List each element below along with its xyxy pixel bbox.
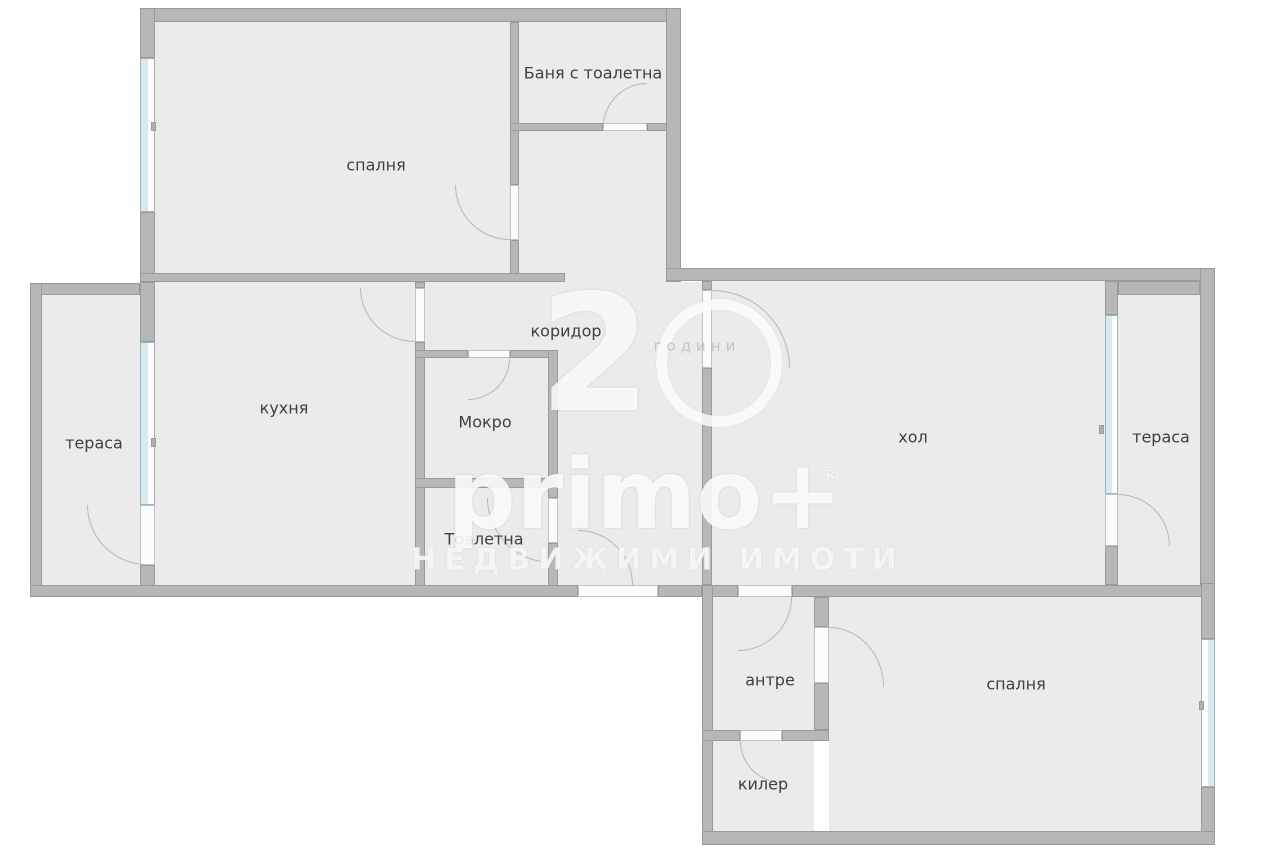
window-bedroom-bottom: [1201, 639, 1215, 787]
watermark-brand-logo: primo+: [447, 439, 842, 551]
wall: [666, 268, 1215, 281]
wall: [140, 8, 681, 22]
door-closet: [740, 730, 782, 741]
wall: [814, 683, 829, 730]
door-entrance: [578, 585, 658, 597]
room-label-terrace-right: тераса: [1132, 428, 1190, 447]
door-utility: [468, 350, 510, 358]
wall: [1105, 546, 1118, 585]
wall: [792, 585, 1215, 597]
watermark-digit: 2: [539, 261, 652, 449]
room-floor-bedroom-top: [155, 22, 510, 273]
wall: [666, 8, 681, 282]
room-label-entry-hall: антре: [745, 671, 795, 690]
room-label-closet: килер: [738, 775, 788, 794]
room-label-kitchen: кухня: [260, 399, 309, 418]
window-handle: [1099, 425, 1104, 434]
watermark-registered: ®: [819, 464, 841, 489]
room-label-utility: Мокро: [458, 413, 511, 432]
wall: [510, 22, 519, 185]
floor-plan: спалня Баня с тоалетна коридор кухня тер…: [0, 0, 1285, 854]
window-kitchen-terrace: [140, 342, 155, 505]
wall: [1201, 583, 1215, 639]
wall: [140, 273, 565, 282]
wall: [415, 350, 468, 358]
wall: [30, 585, 578, 597]
wall: [702, 585, 713, 845]
door-kitchen: [415, 288, 425, 342]
wall: [140, 212, 155, 282]
room-floor-bedroom-bottom: [829, 597, 1201, 831]
door-bedroom-bottom: [814, 627, 829, 683]
wall: [30, 283, 140, 295]
wall: [140, 282, 155, 342]
wall: [814, 597, 829, 627]
wall: [1118, 281, 1200, 295]
window-handle: [1199, 701, 1204, 710]
wall: [702, 730, 740, 741]
room-floor-corridor-upper: [519, 131, 666, 282]
door-terrace-right: [1105, 494, 1118, 546]
wall: [30, 283, 42, 597]
wall: [782, 730, 829, 741]
window-handle: [151, 122, 156, 131]
wall: [702, 281, 712, 290]
door-entry-hall: [738, 585, 792, 597]
room-label-living-room: хол: [898, 428, 927, 447]
window-handle: [151, 438, 156, 447]
wall: [702, 831, 1215, 845]
wall: [658, 585, 702, 597]
wall: [140, 8, 155, 58]
wall: [1200, 268, 1215, 597]
room-label-terrace-left: тераса: [65, 434, 123, 453]
watermark-years-word: години: [654, 337, 741, 355]
window-living-terrace: [1105, 315, 1118, 494]
room-label-bathroom: Баня с тоалетна: [524, 64, 662, 83]
room-floor-kitchen: [155, 282, 415, 585]
room-label-bedroom-top: спалня: [346, 156, 405, 175]
watermark-zero-ring: [656, 299, 782, 427]
wall: [1105, 281, 1118, 315]
door-bedroom-top: [510, 185, 519, 240]
window-bedroom-top: [140, 58, 155, 212]
watermark-tagline: НЕДВИЖИМИ ИМОТИ: [411, 543, 905, 578]
room-label-bedroom-bottom: спалня: [986, 675, 1045, 694]
wall: [510, 123, 603, 131]
